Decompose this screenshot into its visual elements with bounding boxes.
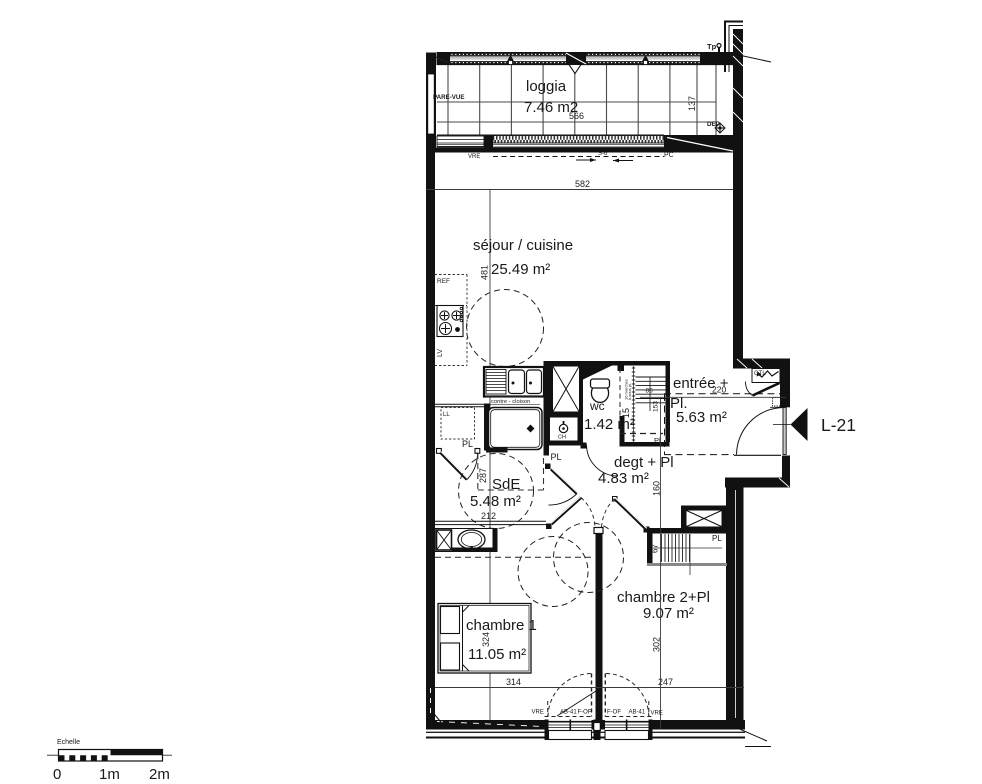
svg-text:582: 582 bbox=[575, 179, 590, 189]
svg-text:PC: PC bbox=[664, 152, 674, 159]
svg-text:212: 212 bbox=[481, 511, 496, 521]
svg-text:chambre 1: chambre 1 bbox=[466, 617, 537, 634]
svg-text:AB-41: AB-41 bbox=[629, 710, 646, 716]
svg-text:PL: PL bbox=[551, 452, 562, 462]
svg-text:CH: CH bbox=[558, 435, 566, 441]
svg-text:S-6: S-6 bbox=[598, 151, 608, 157]
svg-text:324: 324 bbox=[481, 632, 491, 647]
svg-text:Tp: Tp bbox=[707, 42, 717, 51]
svg-text:wc: wc bbox=[589, 399, 605, 413]
svg-text:481: 481 bbox=[480, 265, 490, 280]
svg-text:PL: PL bbox=[462, 439, 473, 449]
svg-text:h.sous pl.: h.sous pl. bbox=[627, 383, 632, 400]
svg-text:302: 302 bbox=[652, 637, 662, 652]
svg-text:566: 566 bbox=[569, 111, 584, 121]
svg-text:REF: REF bbox=[437, 278, 450, 285]
svg-text:67: 67 bbox=[651, 544, 660, 553]
svg-text:PARE-VUE: PARE-VUE bbox=[433, 94, 465, 101]
svg-text:0: 0 bbox=[53, 766, 61, 783]
svg-text:L-21: L-21 bbox=[821, 415, 856, 435]
svg-text:loggia: loggia bbox=[526, 78, 567, 95]
svg-text:Echelle: Echelle bbox=[57, 739, 80, 746]
svg-text:chambre 2+Pl: chambre 2+Pl bbox=[617, 589, 710, 606]
svg-text:4.83 m²: 4.83 m² bbox=[598, 470, 649, 487]
svg-text:F-OF: F-OF bbox=[578, 710, 592, 716]
svg-text:LL: LL bbox=[443, 412, 450, 418]
svg-text:VRE: VRE bbox=[468, 154, 480, 160]
svg-text:AB-41: AB-41 bbox=[560, 710, 577, 716]
svg-text:86: 86 bbox=[646, 388, 654, 395]
svg-text:VRE: VRE bbox=[651, 711, 663, 717]
svg-text:degt + Pl: degt + Pl bbox=[614, 454, 674, 471]
svg-text:2m: 2m bbox=[149, 766, 170, 783]
svg-text:5.63 m²: 5.63 m² bbox=[676, 409, 727, 426]
svg-text:5.48 m²: 5.48 m² bbox=[470, 493, 521, 510]
svg-text:25.49 m²: 25.49 m² bbox=[491, 261, 550, 278]
svg-text:220: 220 bbox=[712, 385, 726, 395]
svg-text:Pl: Pl bbox=[654, 436, 661, 445]
svg-text:PL: PL bbox=[712, 534, 722, 543]
svg-text:11.05 m²: 11.05 m² bbox=[468, 646, 526, 663]
svg-text:séjour / cuisine: séjour / cuisine bbox=[473, 237, 573, 254]
svg-text:1m: 1m bbox=[99, 766, 120, 783]
svg-text:15: 15 bbox=[621, 408, 631, 418]
svg-text:F-OF: F-OF bbox=[607, 710, 621, 716]
svg-text:SdE: SdE bbox=[492, 476, 520, 493]
svg-text:9.07 m²: 9.07 m² bbox=[643, 605, 694, 622]
svg-text:287: 287 bbox=[478, 468, 488, 483]
svg-text:VRE: VRE bbox=[532, 710, 544, 716]
svg-text:314: 314 bbox=[506, 677, 521, 687]
svg-text:LV: LV bbox=[437, 349, 444, 357]
svg-text:137: 137 bbox=[687, 96, 697, 111]
svg-text:153: 153 bbox=[653, 401, 660, 412]
svg-text:160: 160 bbox=[652, 481, 662, 496]
